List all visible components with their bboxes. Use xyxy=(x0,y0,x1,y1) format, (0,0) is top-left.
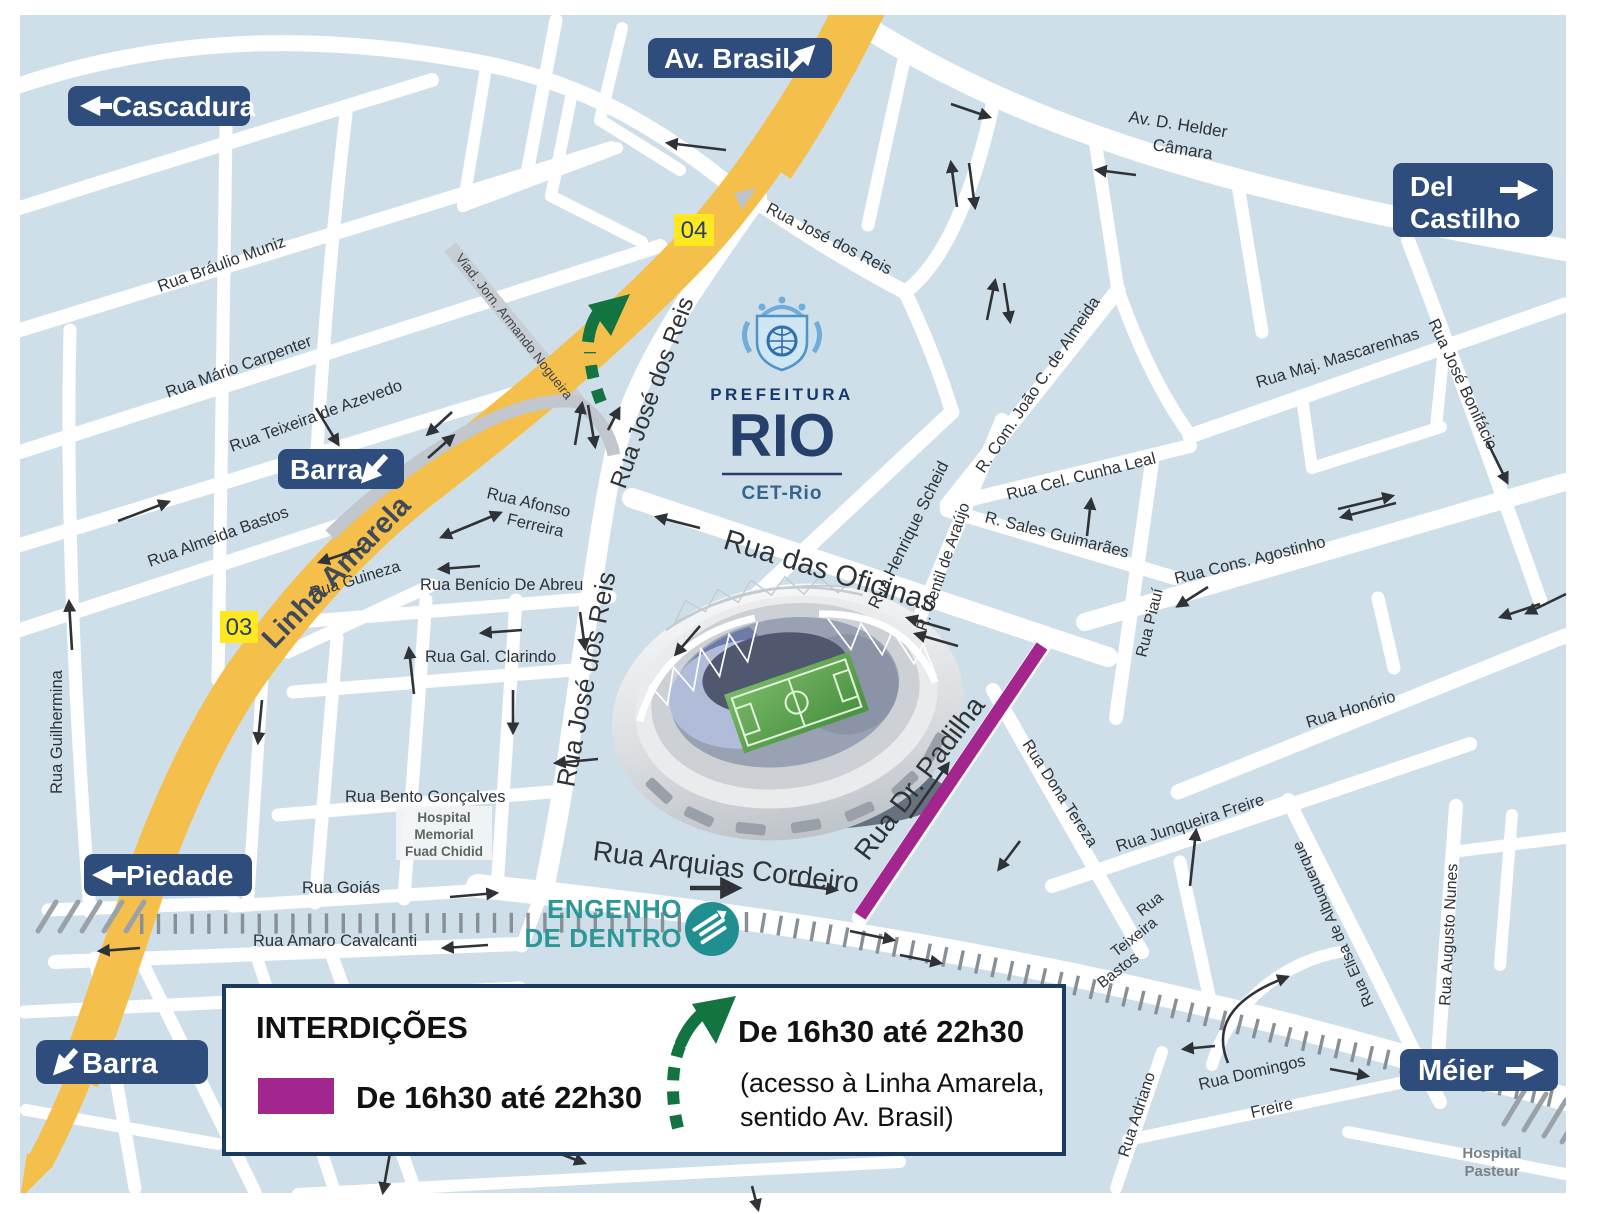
svg-text:Méier: Méier xyxy=(1418,1055,1494,1087)
svg-text:Rua Goiás: Rua Goiás xyxy=(302,879,380,897)
svg-text:INTERDIÇÕES: INTERDIÇÕES xyxy=(256,1009,468,1045)
svg-text:DE DENTRO: DE DENTRO xyxy=(524,923,682,953)
svg-text:Rua Gal. Clarindo: Rua Gal. Clarindo xyxy=(425,648,556,666)
svg-text:Rua Amaro Cavalcanti: Rua Amaro Cavalcanti xyxy=(253,932,417,950)
svg-text:Piedade: Piedade xyxy=(126,860,233,891)
svg-text:Castilho: Castilho xyxy=(1410,203,1520,234)
svg-text:Av. Brasil: Av. Brasil xyxy=(664,43,790,74)
svg-text:Rua Bento Gonçalves: Rua Bento Gonçalves xyxy=(345,788,506,806)
svg-text:De 16h30 até 22h30: De 16h30 até 22h30 xyxy=(738,1014,1024,1049)
svg-text:Hospital: Hospital xyxy=(1462,1145,1521,1162)
svg-text:Pasteur: Pasteur xyxy=(1464,1163,1519,1180)
svg-text:RIO: RIO xyxy=(729,402,836,469)
svg-text:Hospital: Hospital xyxy=(417,810,470,825)
svg-text:(acesso à Linha Amarela,: (acesso à Linha Amarela, xyxy=(740,1068,1045,1098)
svg-text:03: 03 xyxy=(226,614,253,641)
svg-text:Memorial: Memorial xyxy=(414,827,473,842)
svg-text:Rua Guilhermina: Rua Guilhermina xyxy=(48,669,66,794)
svg-text:sentido Av. Brasil): sentido Av. Brasil) xyxy=(740,1102,954,1132)
svg-text:CET-Rio: CET-Rio xyxy=(742,483,823,504)
svg-text:De 16h30 até 22h30: De 16h30 até 22h30 xyxy=(356,1080,642,1115)
svg-text:ENGENHO: ENGENHO xyxy=(547,894,682,924)
svg-text:Fuad Chidid: Fuad Chidid xyxy=(405,844,483,859)
svg-text:Del: Del xyxy=(1410,171,1454,202)
svg-text:Rua Benício De Abreu: Rua Benício De Abreu xyxy=(420,576,583,594)
svg-text:Barra: Barra xyxy=(290,454,364,485)
svg-text:04: 04 xyxy=(681,217,708,244)
svg-text:Barra: Barra xyxy=(82,1048,159,1080)
svg-text:Cascadura: Cascadura xyxy=(112,91,256,122)
